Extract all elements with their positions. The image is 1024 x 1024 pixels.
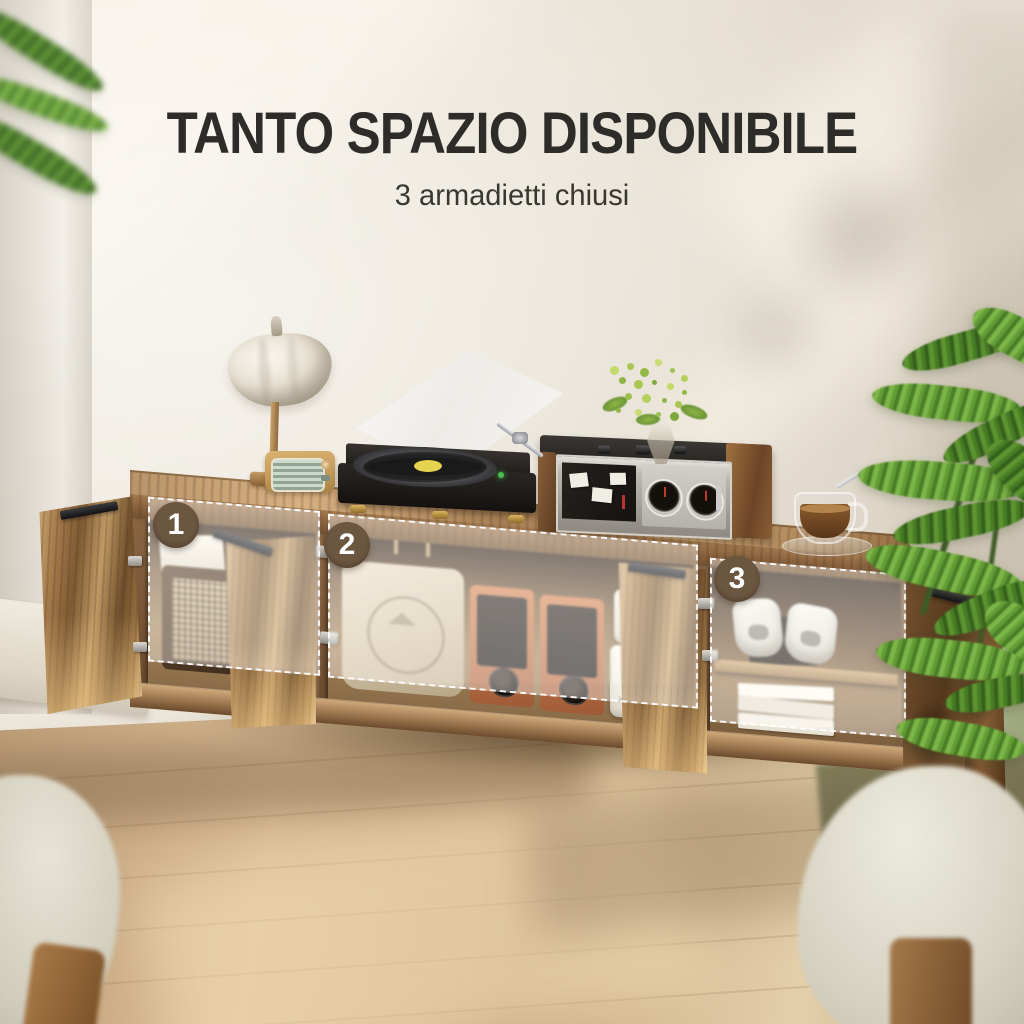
badge-compartment-3: 3 — [714, 556, 760, 602]
stereo-front-panel — [556, 454, 732, 540]
badge-2-label: 2 — [339, 528, 356, 562]
door-hinge — [128, 556, 142, 566]
turntable-foot — [432, 511, 448, 519]
plant-leaf-icon — [601, 393, 630, 415]
cup-handle — [848, 502, 868, 532]
headline-block: TANTO SPAZIO DISPONIBILE 3 armadietti ch… — [0, 100, 1024, 213]
cabinet-door-left-open — [30, 492, 148, 714]
stereo-red-marker — [622, 495, 625, 509]
coffee — [800, 504, 850, 538]
orange-speaker — [540, 594, 604, 715]
door-hinge — [320, 631, 339, 645]
page-subtitle: 3 armadietti chiusi — [15, 179, 1008, 213]
stereo-card — [569, 472, 589, 488]
plant-leaf-icon — [679, 402, 709, 422]
stereo-wood-side-left — [538, 452, 556, 535]
turntable-foot — [508, 515, 524, 523]
table-lamp-finial — [270, 316, 282, 337]
game-controller — [731, 598, 785, 657]
retro-radio — [265, 451, 335, 492]
turntable-tonearm-base — [512, 432, 528, 444]
product-marketing-image: TANTO SPAZIO DISPONIBILE 3 armadietti ch… — [0, 0, 1024, 1024]
pouf-left-leg — [22, 941, 107, 1024]
radio-switch — [321, 475, 330, 481]
cabinet-door-middle-right-open — [614, 556, 710, 778]
plant-leaf-icon — [635, 413, 660, 426]
stereo-card — [592, 487, 613, 503]
door-hinge — [698, 598, 714, 609]
badge-3-label: 3 — [729, 562, 746, 596]
door-hinge — [133, 642, 147, 652]
plant-foliage — [610, 366, 619, 375]
turntable-foot — [350, 505, 366, 513]
turntable-power-led — [498, 472, 504, 478]
cabinet-stile — [316, 534, 328, 699]
stereo-card — [610, 473, 627, 485]
page-title: TANTO SPAZIO DISPONIBILE — [61, 100, 962, 167]
cabinet-door-middle-left-open — [220, 534, 320, 730]
stereo-display-window — [562, 462, 636, 521]
pouf-right-leg — [890, 938, 972, 1024]
badge-1-label: 1 — [168, 508, 185, 542]
stereo-dial — [645, 478, 683, 518]
small-plant — [596, 358, 726, 444]
book-stack — [738, 681, 834, 739]
radio-knob — [321, 460, 330, 469]
stereo-lever — [716, 485, 721, 511]
vinyl-record-label — [414, 460, 442, 472]
glass-coffee-cup — [794, 492, 856, 544]
orange-speaker — [470, 585, 534, 708]
badge-compartment-1: 1 — [153, 502, 199, 548]
stereo-knob — [674, 446, 686, 455]
stereo-knob — [598, 445, 610, 454]
radio-grille — [271, 458, 325, 492]
door-hinge — [702, 650, 718, 661]
stereo-knob — [636, 445, 650, 455]
badge-compartment-2: 2 — [324, 522, 370, 568]
stereo-wood-side-right — [726, 443, 772, 539]
storage-basket — [342, 560, 464, 698]
stereo-dial-panel — [642, 464, 726, 530]
